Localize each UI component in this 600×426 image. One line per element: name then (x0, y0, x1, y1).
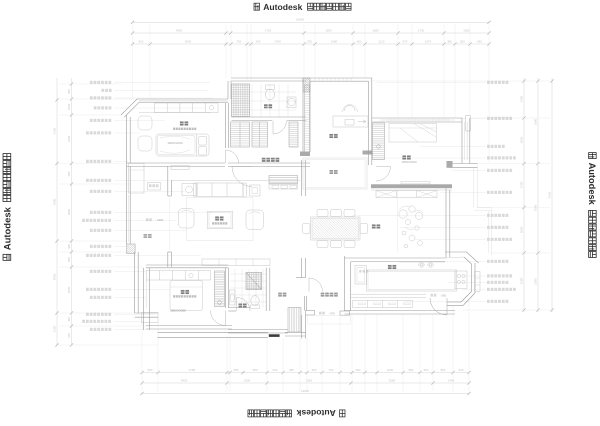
svg-text:1110: 1110 (378, 39, 384, 43)
svg-text:1480: 1480 (520, 95, 524, 102)
svg-text:500: 500 (356, 368, 361, 372)
svg-text:4830: 4830 (53, 273, 57, 280)
svg-text:400: 400 (357, 39, 362, 43)
svg-text:680: 680 (409, 368, 414, 372)
svg-text:500: 500 (67, 257, 71, 262)
svg-text:700: 700 (237, 39, 242, 43)
svg-text:1830: 1830 (325, 28, 332, 32)
svg-text:3420: 3420 (181, 378, 188, 382)
svg-text:450: 450 (67, 317, 71, 322)
svg-text:: 2380: : 2380 (156, 218, 164, 222)
svg-text:: 900: : 900 (440, 294, 447, 298)
svg-text:4150: 4150 (53, 127, 57, 134)
svg-text:500: 500 (460, 39, 465, 43)
svg-text:500: 500 (234, 368, 239, 372)
svg-text:1500X2000: 1500X2000 (401, 160, 417, 164)
svg-text:13090: 13090 (301, 389, 309, 393)
svg-text:380: 380 (447, 39, 452, 43)
svg-text:380: 380 (67, 244, 71, 249)
svg-text:1760: 1760 (274, 39, 281, 43)
svg-text:960: 960 (253, 368, 258, 372)
svg-text:1730: 1730 (418, 28, 425, 32)
svg-text:1800X2000: 1800X2000 (170, 309, 186, 313)
svg-text:2780: 2780 (189, 368, 196, 372)
svg-text:Autodesk: Autodesk (587, 163, 597, 206)
svg-text:1800X2000: 1800X2000 (167, 141, 183, 145)
svg-text:1440: 1440 (448, 378, 455, 382)
svg-text:1070: 1070 (425, 39, 432, 43)
svg-text:3250: 3250 (67, 135, 71, 142)
svg-text:370: 370 (307, 39, 312, 43)
svg-text:3450: 3450 (176, 28, 183, 32)
svg-text:910: 910 (139, 39, 144, 43)
svg-text:3280: 3280 (389, 378, 396, 382)
svg-text:9160: 9160 (548, 191, 552, 198)
svg-text:600: 600 (312, 368, 317, 372)
svg-text:1590: 1590 (244, 378, 251, 382)
svg-text:2540: 2540 (185, 39, 192, 43)
svg-text:Autodesk: Autodesk (2, 206, 13, 250)
svg-text:600: 600 (67, 89, 71, 94)
svg-text:1820: 1820 (520, 226, 524, 233)
svg-text:2150: 2150 (53, 325, 57, 332)
svg-text:800: 800 (441, 368, 446, 372)
svg-text:3060: 3060 (67, 286, 71, 293)
svg-text:Autodesk: Autodesk (296, 408, 335, 418)
svg-text:470: 470 (403, 39, 408, 43)
svg-text:1040: 1040 (387, 368, 394, 372)
svg-text:: 976: : 976 (329, 311, 336, 315)
svg-text:240: 240 (256, 39, 261, 43)
svg-text:5200: 5200 (53, 198, 57, 205)
svg-text:520: 520 (424, 368, 429, 372)
svg-text:720: 720 (329, 368, 334, 372)
svg-text:1650: 1650 (463, 28, 470, 32)
svg-text:1280: 1280 (331, 39, 338, 43)
svg-text:2720: 2720 (265, 28, 272, 32)
svg-text:1060: 1060 (67, 103, 71, 110)
svg-text:560: 560 (148, 368, 153, 372)
svg-text:640: 640 (67, 333, 71, 338)
svg-text:2280: 2280 (534, 278, 538, 285)
svg-text:690: 690 (67, 171, 71, 176)
svg-text:3580: 3580 (534, 204, 538, 211)
svg-text:640: 640 (459, 368, 464, 372)
svg-text:680: 680 (289, 368, 294, 372)
svg-text:2280: 2280 (520, 277, 524, 284)
svg-text:1760: 1760 (520, 181, 524, 188)
svg-text:630: 630 (477, 39, 482, 43)
svg-text:1820: 1820 (520, 136, 524, 143)
svg-text:3300: 3300 (534, 118, 538, 125)
svg-text:3360: 3360 (306, 378, 313, 382)
svg-text:1650: 1650 (372, 28, 379, 32)
svg-text:Autodesk: Autodesk (263, 2, 302, 12)
svg-text:640: 640 (273, 368, 278, 372)
svg-text:15600: 15600 (296, 18, 304, 22)
svg-text:3800: 3800 (67, 208, 71, 215)
